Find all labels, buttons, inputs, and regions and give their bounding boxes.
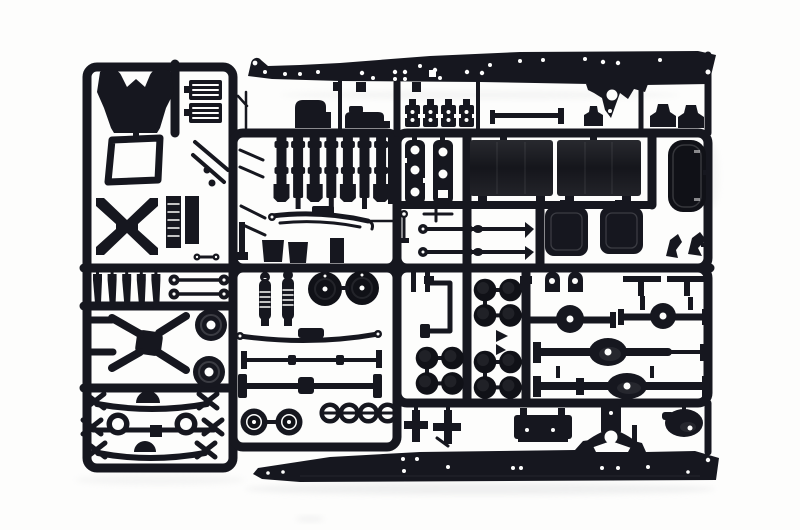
part-air-tank [668,140,711,212]
part-step-grille-1 [184,80,222,100]
part-cab-mount-2 [678,105,704,128]
part-spring-hanger-brackets [404,99,475,127]
part-cab-mount-1 [650,104,676,127]
part-step-grille-2 [184,103,222,123]
part-shock-cluster [90,308,186,370]
part-front-axle-assemblies [83,391,222,458]
part-axle-housings [524,296,709,399]
part-h-brace [96,198,158,255]
part-bottom-small-row [404,401,703,450]
part-mount-plate [514,408,572,442]
part-muffler [345,112,390,128]
sprue-illustration [0,0,800,530]
part-shock-absorbers [259,268,294,326]
part-straight-rod [241,350,382,369]
part-flanged-axle [238,374,382,398]
part-battery-box-2 [600,200,643,254]
part-spare-tires [308,268,379,306]
part-u-channel-rod [420,276,450,338]
part-filler-pod [662,403,703,437]
part-wheel-hubs [241,409,303,436]
part-link-rods [169,275,230,300]
part-battery-box-1 [545,200,588,256]
part-cab-window-frame [108,138,160,182]
part-link-dumbbell [194,254,220,261]
part-leaf-spring-long [268,206,397,229]
part-pulleys [193,309,227,388]
part-cab-back-panel [97,69,174,133]
part-crossmember-bars [274,134,390,209]
part-ladder-frame-1 [403,133,427,204]
part-roof-bar [490,108,564,124]
part-ladder-frame-2 [433,133,453,204]
part-fuel-tank-2 [557,133,641,203]
part-wiper-arms [193,142,228,187]
part-small-mount [584,106,603,126]
sprue-photo [0,0,800,530]
left-column-cab-parts [96,69,228,261]
part-radiator-step [166,196,199,248]
bottom-left-column [83,268,230,458]
bottom-right-cells [404,268,709,450]
part-wing-brackets [666,232,709,258]
right-top-cells [400,133,711,260]
part-air-cleaner [295,100,331,128]
part-exhaust-stack-pins [93,268,160,303]
part-fuel-tank-1 [470,133,553,203]
bottom-middle-column [236,268,396,436]
part-leaf-spring-axle [236,328,382,341]
part-mirror-arms [238,92,265,235]
